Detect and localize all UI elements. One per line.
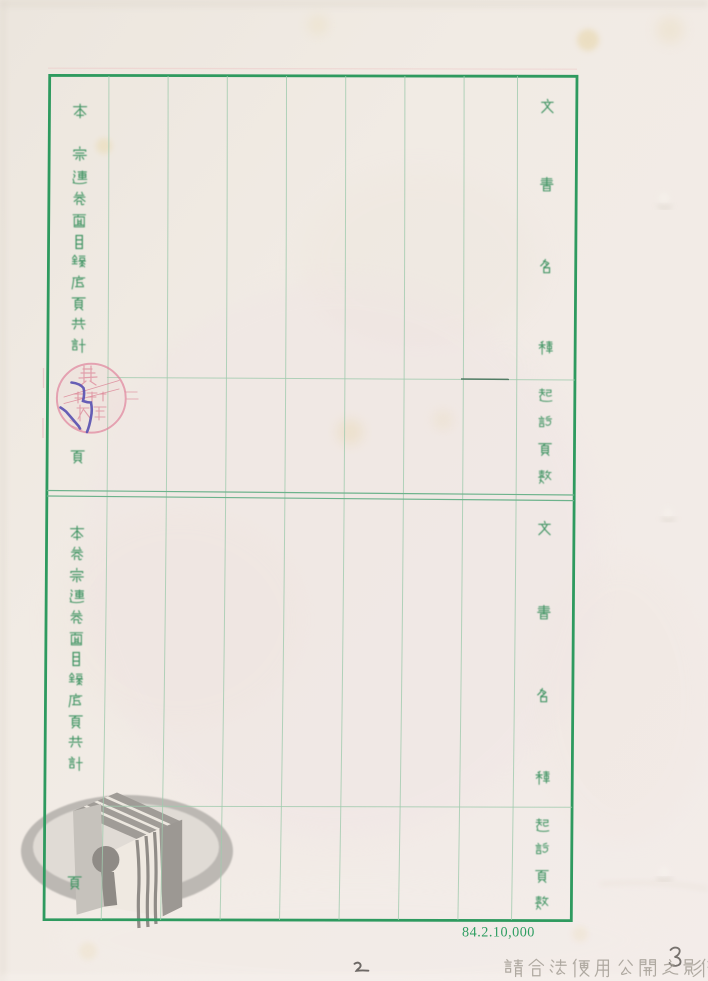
svg-text:84.2.10,000: 84.2.10,000 (462, 925, 535, 941)
